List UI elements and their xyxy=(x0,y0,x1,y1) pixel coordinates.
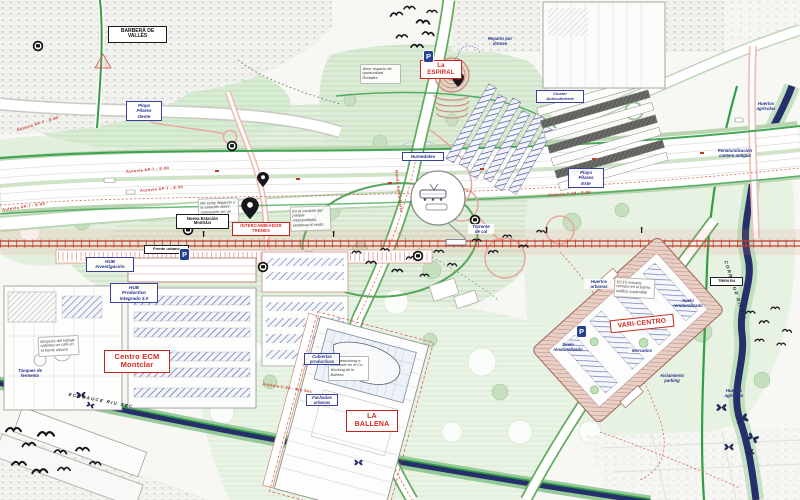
note-huertos-urbanos: Huertos urbanos xyxy=(584,279,614,289)
parking-icon: P xyxy=(180,249,189,260)
factory-north xyxy=(543,2,665,88)
bird-icon xyxy=(390,12,402,16)
bus-stop-icon xyxy=(414,252,423,261)
note-reparto-drones: Reparto por drones xyxy=(482,36,518,46)
note-tanques-fermento: Tanques de fermento xyxy=(14,368,46,378)
masterplan-map: BARBERÀ DE VALLÈS Nueva Estación Montcla… xyxy=(0,0,800,500)
bird-icon xyxy=(404,6,415,8)
label-la-espiral: La ESPIRAL xyxy=(420,60,462,79)
note-cubiertas-productivas: Cubiertas productivas xyxy=(304,353,340,365)
note-renaturalizacion-cantera: Renaturalización cantera antigua xyxy=(712,148,758,158)
label-centro-ecm-montclar: Centro ECM Montclar xyxy=(104,350,170,373)
label-tren-r4: TREN R4 xyxy=(710,277,743,286)
annotation-note-15min: En 15 minutos compro en el barrio: edifi… xyxy=(614,277,656,299)
label-hub-productivo: HUB Productivo Integrado 3.0 xyxy=(110,283,158,303)
bus-stop-icon xyxy=(259,263,268,272)
bus-stop-icon xyxy=(228,142,237,151)
annotation-note-rodalies: Área: espacio de oportunidad Rodalies xyxy=(360,64,401,84)
annotation-note-cafe: Después del trabajo saborea un café en e… xyxy=(38,335,80,357)
annotation-note-parque: En el corazón del parque metropolitano, … xyxy=(290,205,332,231)
bird-icon xyxy=(422,31,434,35)
note-suelo-renaturalizado-2: Suelo renaturalizado xyxy=(550,342,586,352)
label-nueva-estacion-montclar: Nueva Estación Montclar xyxy=(176,214,229,229)
bird-icon xyxy=(396,34,407,37)
parking-icon: P xyxy=(424,51,433,62)
label-cluster-autosuficiente: Cluster Autosuficiente xyxy=(536,90,584,103)
note-suelo-renaturalizado-1: Suelo renaturalizado xyxy=(670,298,706,308)
bus-stop-icon xyxy=(34,42,43,51)
label-playa-pilares-oeste: Playa Pilares Oeste xyxy=(126,101,162,121)
label-playa-pilares-este: Playa Pilares Este xyxy=(568,168,604,188)
note-fachadas-urbanas: Fachadas urbanas xyxy=(306,394,338,406)
label-intercambiador-trenes: INTERCAMBIADOR TRENES xyxy=(232,222,290,236)
label-la-ballena: LA BALLENA xyxy=(346,410,398,432)
note-huertos-agricolas-2: Huertos agrícolas xyxy=(720,388,748,398)
label-barbera-de-valles: BARBERÀ DE VALLÈS xyxy=(108,26,167,43)
note-aislamiento-parking: Aislamiento parking xyxy=(656,373,688,383)
label-humedales: Humedales xyxy=(402,152,444,161)
parking-icon: P xyxy=(577,326,586,337)
bird-icon xyxy=(417,20,430,24)
label-hub-investigacion: HUB Investigación xyxy=(86,257,134,272)
note-huertos-agricolas-1: Huertos agrícolas xyxy=(752,101,780,111)
note-mercados: Mercados xyxy=(628,348,656,353)
note-torrente: Torrente de cal xyxy=(468,224,494,234)
bird-icon xyxy=(427,10,437,12)
